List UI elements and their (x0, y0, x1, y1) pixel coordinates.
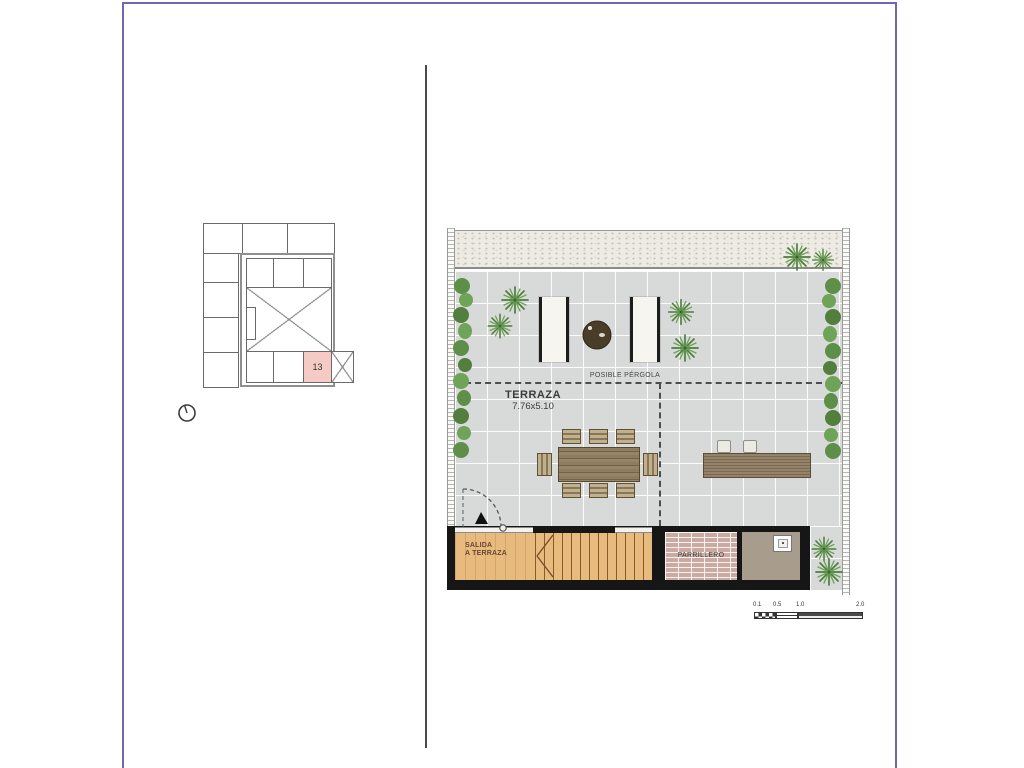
stairs (535, 533, 652, 580)
pergola-label: POSIBLE PÉRGOLA (583, 372, 667, 379)
salida-room: SALIDA A TERRAZA (455, 533, 535, 580)
dining-chair (616, 429, 635, 444)
divider-line (425, 65, 427, 748)
scale-bar-long-segment (798, 612, 863, 619)
key-plan-cell (246, 351, 274, 383)
scale-bar-mid-segment (776, 612, 798, 619)
bar-counter (703, 453, 811, 478)
sink (773, 535, 792, 552)
key-plan-cell (203, 223, 243, 254)
key-plan-courtyard (246, 287, 332, 352)
service-block: SALIDA A TERRAZA PARRILLERO (447, 526, 810, 590)
scale-label: 2.0 (856, 602, 864, 608)
dining-chair (562, 429, 581, 444)
sun-lounger (539, 297, 569, 362)
salida-label-line2: A TERRAZA (465, 550, 507, 558)
left-wall-strip (447, 228, 455, 526)
dining-chair (589, 483, 608, 498)
pergola-dashed-line-horizontal (455, 382, 842, 384)
key-plan-cell (303, 258, 332, 288)
key-plan-terrace-x-cell (331, 351, 354, 383)
bar-stool (743, 440, 757, 453)
key-plan-cell (242, 223, 288, 254)
terraza-dimensions: 7.76x5.10 (487, 401, 579, 413)
sun-lounger (630, 297, 660, 362)
key-plan-cell (273, 351, 304, 383)
key-plan-cell (273, 258, 304, 288)
key-plan-cell (203, 253, 239, 283)
key-plan-cell (203, 352, 239, 388)
key-plan-cell (203, 317, 239, 353)
key-plan-stair-tab (246, 307, 256, 340)
scale-label: 0.5 (773, 602, 781, 608)
scale-label: 0.1 (753, 602, 761, 608)
dining-chair (537, 453, 552, 476)
terraza-label: TERRAZA 7.76x5.10 (487, 389, 579, 413)
parrillero-room: PARRILLERO (665, 532, 737, 580)
key-plan-cell (287, 223, 335, 254)
dining-chair (589, 429, 608, 444)
scale-label: 1.0 (796, 602, 804, 608)
terraza-name: TERRAZA (487, 389, 579, 401)
key-plan-cell (203, 282, 239, 318)
pergola-dashed-line-vertical (659, 383, 661, 526)
dining-chair (643, 453, 658, 476)
gravel-band (455, 230, 842, 269)
utility-room (742, 532, 800, 580)
dining-chair (562, 483, 581, 498)
floor-plan: POSIBLE PÉRGOLA TERRAZA 7.76x5.10 (447, 228, 850, 598)
bar-stool (717, 440, 731, 453)
parrillero-label: PARRILLERO (665, 552, 737, 559)
key-plan-highlighted-unit: 13 (303, 351, 332, 383)
scale-bar-checker-segment (754, 612, 776, 619)
sink-drain (782, 542, 784, 544)
key-plan-cell (246, 258, 274, 288)
page: 13 POSIBLE PÉRGOLA TERRAZA 7.76x5.10 (0, 0, 1024, 768)
terrace-tiles-patch (810, 526, 842, 590)
scale-bar: 0.1 0.5 1.0 2.0 (752, 602, 866, 622)
dining-chair (616, 483, 635, 498)
right-wall-strip (842, 228, 850, 595)
dining-table (558, 447, 640, 482)
stairs-opening (615, 527, 652, 533)
north-indicator-icon (176, 402, 198, 424)
salida-label-line1: SALIDA (465, 542, 507, 550)
stairs-top-wall (533, 526, 615, 533)
unit-number-label: 13 (312, 362, 322, 372)
